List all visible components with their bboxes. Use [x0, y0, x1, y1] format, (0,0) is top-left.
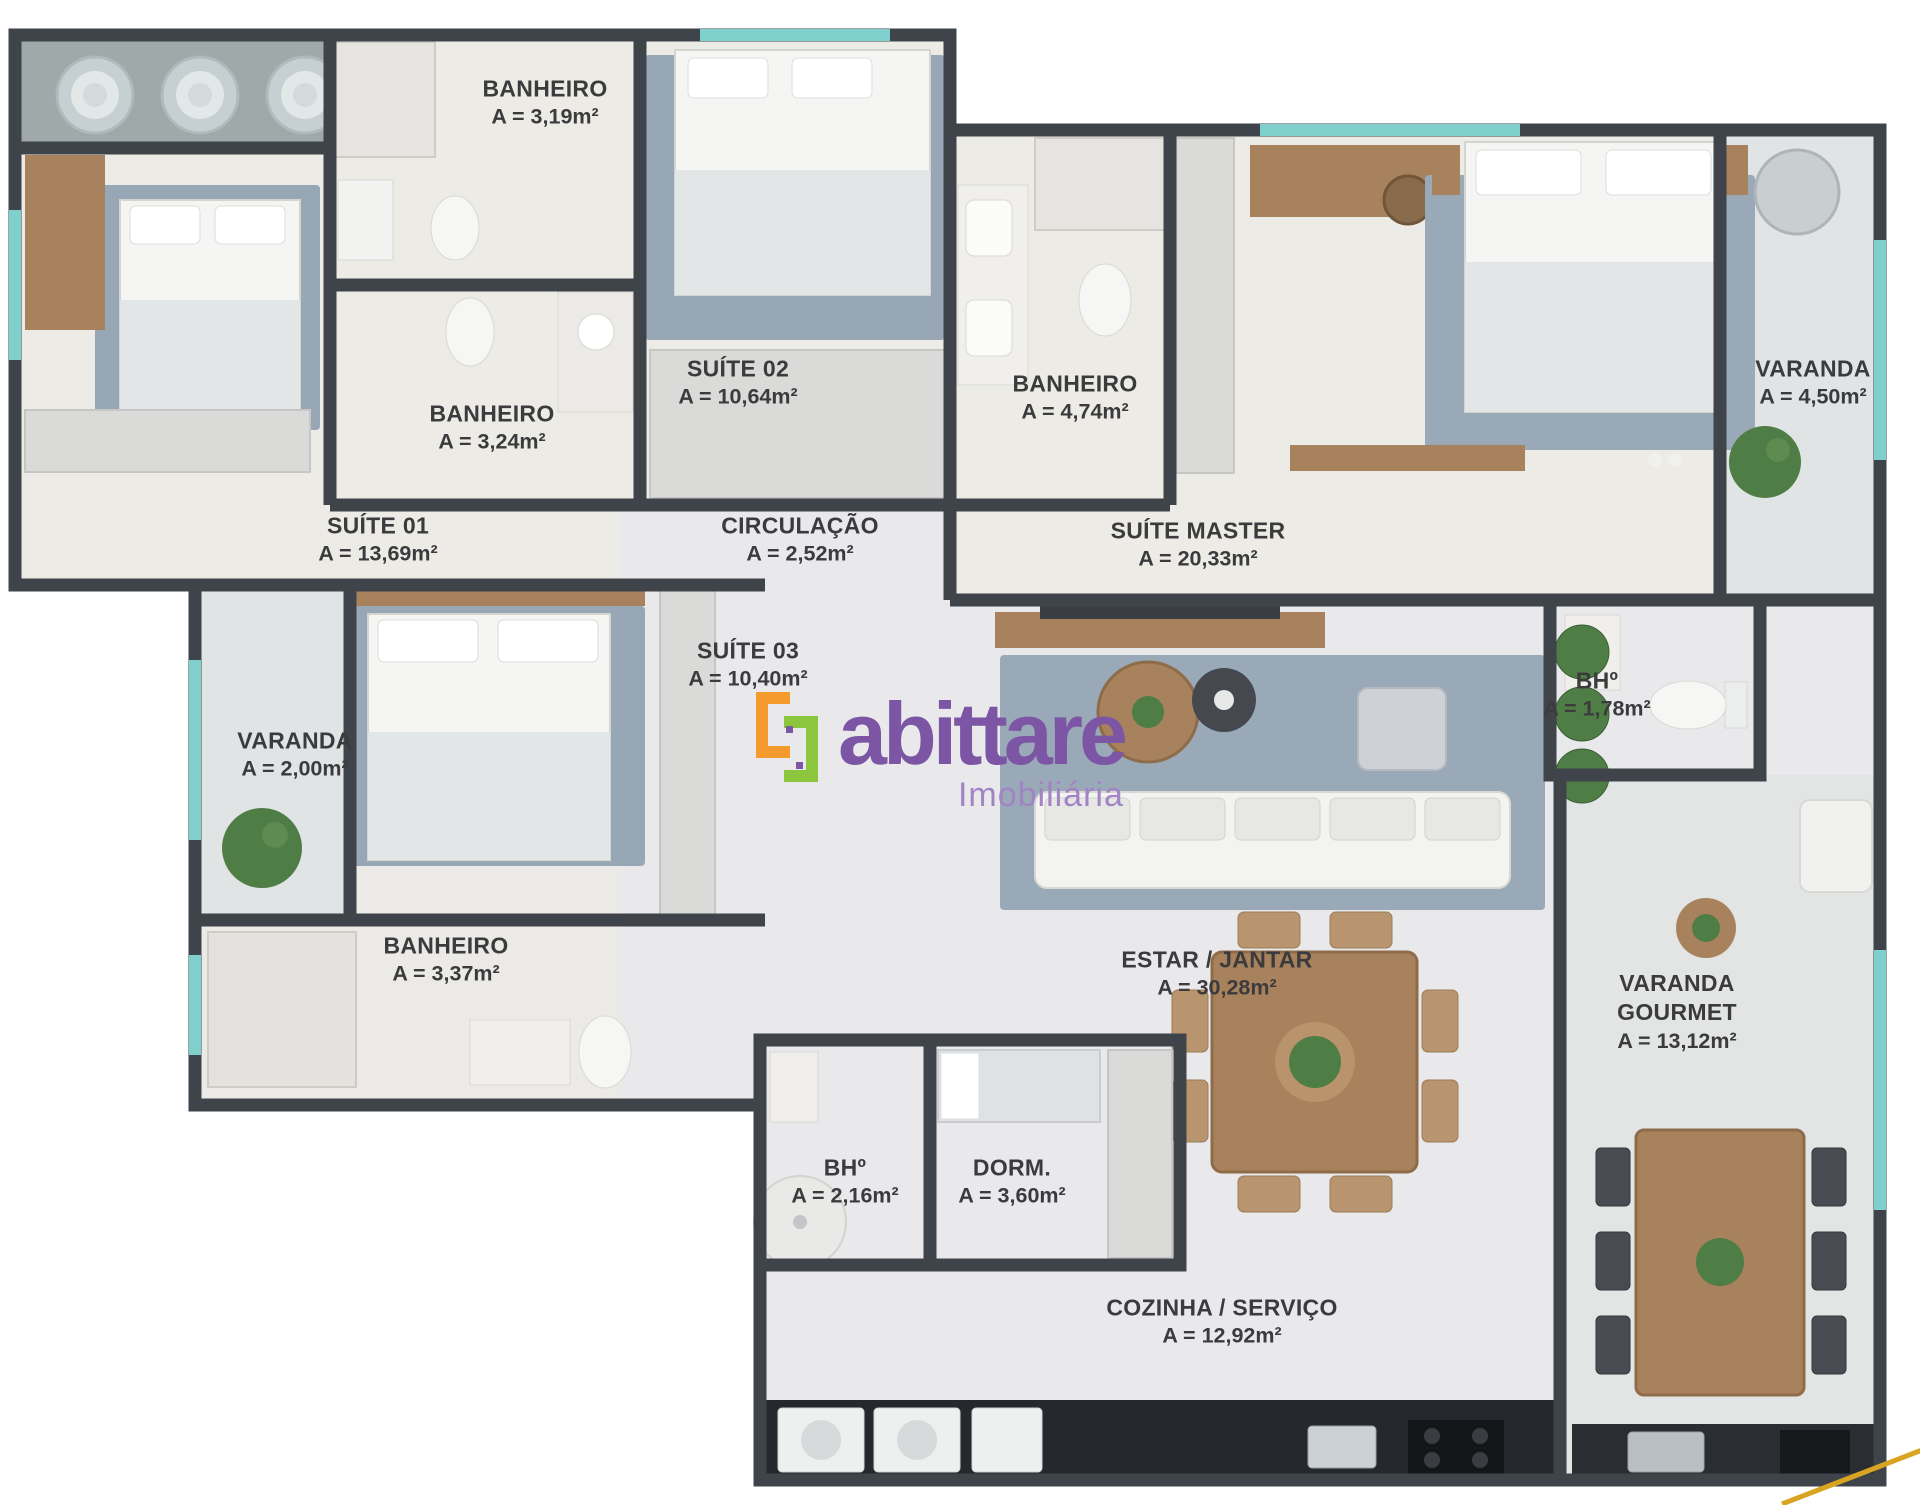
shower-icon: [335, 42, 435, 157]
plant-icon: [222, 808, 302, 888]
room-label-varanda-suite03: VARANDAA = 2,00m²: [237, 727, 352, 784]
dryer-door: [897, 1420, 937, 1460]
room-label-bh-servico: BHºA = 2,16m²: [791, 1154, 898, 1211]
chair-icon: [1422, 990, 1458, 1052]
window: [189, 955, 201, 1055]
cushion: [1330, 798, 1415, 840]
room-label-suite-master: SUÍTE MASTERA = 20,33m²: [1111, 517, 1286, 574]
room-label-varanda-gourmet: VARANDA GOURMETA = 13,12m²: [1617, 969, 1737, 1055]
chair-icon: [1812, 1148, 1846, 1206]
room-name: BANHEIRO: [383, 932, 508, 961]
logo-tagline: Imobiliária: [958, 776, 1124, 815]
plant-leaf: [1766, 438, 1790, 462]
chair-icon: [1330, 1176, 1392, 1212]
room-area: A = 13,69m²: [318, 541, 437, 569]
window: [9, 210, 21, 360]
toilet-icon: [579, 1016, 631, 1088]
round-light-icon: [162, 57, 238, 133]
furniture-suite02: [645, 50, 945, 498]
furniture-suite01: [25, 155, 320, 472]
room-area: A = 3,37m²: [383, 961, 508, 989]
desk-icon: [25, 155, 105, 330]
window: [189, 660, 201, 840]
logo-brand: abittare: [838, 692, 1124, 776]
logo-text: abittare Imobiliária: [838, 692, 1124, 815]
sink-icon: [338, 180, 393, 260]
chair-icon: [1596, 1316, 1630, 1374]
room-name: BANHEIRO: [429, 400, 554, 429]
window: [1260, 124, 1520, 136]
chair-icon: [1812, 1232, 1846, 1290]
pillow: [498, 620, 598, 662]
room-name: ESTAR / JANTAR: [1121, 946, 1312, 975]
stove-icon: [1408, 1420, 1504, 1476]
room-area: A = 4,74m²: [1012, 399, 1137, 427]
abittare-logo-icon: [756, 692, 826, 796]
decor: [1214, 690, 1234, 710]
room-area: A = 2,16m²: [791, 1183, 898, 1211]
room-name: DORM.: [958, 1154, 1065, 1183]
burner: [1472, 1428, 1488, 1444]
burner: [1472, 1452, 1488, 1468]
room-name: VARANDA: [1755, 355, 1870, 384]
headboard-panel: [345, 590, 645, 606]
room-area: A = 13,12m²: [1617, 1028, 1737, 1056]
room-area: A = 4,50m²: [1755, 384, 1870, 412]
shower-icon: [208, 932, 356, 1087]
room-area: A = 30,28m²: [1121, 975, 1312, 1003]
room-label-banheiro-master: BANHEIROA = 4,74m²: [1012, 370, 1137, 427]
plant-icon: [1132, 696, 1164, 728]
window: [1874, 950, 1886, 1210]
room-area: A = 3,60m²: [958, 1183, 1065, 1211]
room-label-suite-02: SUÍTE 02A = 10,64m²: [678, 355, 797, 412]
chair-icon: [1812, 1316, 1846, 1374]
closet-shelves-icon: [1176, 138, 1234, 473]
room-name: SUÍTE MASTER: [1111, 517, 1286, 546]
plant-icon: [1289, 1036, 1341, 1088]
cushion: [1425, 798, 1500, 840]
room-area: A = 20,33m²: [1111, 546, 1286, 574]
room-area: A = 2,00m²: [237, 756, 352, 784]
room-label-varanda-master: VARANDAA = 4,50m²: [1755, 355, 1870, 412]
chair-icon: [1596, 1232, 1630, 1290]
burner: [1424, 1452, 1440, 1468]
sideboard-icon: [1290, 445, 1525, 471]
furniture-varanda2: [222, 808, 302, 888]
armchair-icon: [1358, 688, 1446, 770]
blanket: [368, 732, 610, 860]
room-area: A = 1,78m²: [1543, 696, 1650, 724]
chair-icon: [1238, 1176, 1300, 1212]
window: [700, 29, 890, 41]
room-area: A = 2,52m²: [721, 541, 879, 569]
sink-icon: [578, 314, 614, 350]
room-name: CIRCULAÇÃO: [721, 512, 879, 541]
decor: [1668, 453, 1682, 467]
room-area: A = 3,19m²: [482, 104, 607, 132]
room-name: VARANDA: [237, 727, 352, 756]
room-label-dorm: DORM.A = 3,60m²: [958, 1154, 1065, 1211]
room-label-suite-01: SUÍTE 01A = 13,69m²: [318, 512, 437, 569]
pillow: [1606, 150, 1711, 195]
chair-icon: [1330, 912, 1392, 948]
plant-icon: [1696, 1238, 1744, 1286]
toilet-icon: [1079, 264, 1131, 336]
toilet-icon: [431, 196, 479, 260]
pillow: [1476, 150, 1581, 195]
vanity-icon: [470, 1020, 570, 1085]
blanket: [675, 170, 930, 295]
room-name: BANHEIRO: [482, 75, 607, 104]
room-label-estar-jantar: ESTAR / JANTARA = 30,28m²: [1121, 946, 1312, 1003]
room-name: VARANDA GOURMET: [1617, 969, 1737, 1028]
logo-dot: [796, 762, 803, 769]
lounge-chair-icon: [1800, 800, 1872, 892]
room-name: COZINHA / SERVIÇO: [1106, 1294, 1337, 1323]
plant-leaf: [262, 822, 288, 848]
decor: [1648, 453, 1662, 467]
logo-dot: [786, 726, 793, 733]
mirror-icon: [1384, 176, 1432, 224]
pillow: [792, 58, 872, 98]
chair-icon: [1238, 912, 1300, 948]
room-name: BHº: [1543, 667, 1650, 696]
room-area: A = 3,24m²: [429, 429, 554, 457]
shower-icon: [1035, 138, 1165, 230]
wardrobe-icon: [25, 410, 310, 472]
plant-icon: [1692, 914, 1720, 942]
grill-icon: [1780, 1430, 1850, 1474]
room-label-suite-03: SUÍTE 03A = 10,40m²: [688, 637, 807, 694]
room-area: A = 10,64m²: [678, 384, 797, 412]
chair-icon: [1422, 1080, 1458, 1142]
room-name: SUÍTE 02: [678, 355, 797, 384]
sink-icon: [770, 1052, 818, 1122]
sink-icon: [966, 300, 1012, 356]
room-name: BANHEIRO: [1012, 370, 1137, 399]
room-area: A = 12,92m²: [1106, 1323, 1337, 1351]
counter-sink-icon: [1628, 1432, 1704, 1472]
nightstand-icon: [1432, 145, 1460, 195]
pillow: [130, 206, 200, 244]
chair-icon: [1596, 1148, 1630, 1206]
sink-icon: [1308, 1426, 1376, 1468]
blanket: [120, 300, 300, 415]
pillow: [688, 58, 768, 98]
window: [1874, 240, 1886, 460]
vanity-icon: [558, 292, 633, 412]
room-label-bh-social: BHºA = 1,78m²: [1543, 667, 1650, 724]
toilet-icon: [1650, 681, 1726, 729]
tv-icon: [1040, 606, 1280, 619]
floorplan-page: BANHEIROA = 3,19m² SUÍTE 02A = 10,64m² B…: [0, 0, 1920, 1505]
washer-door: [801, 1420, 841, 1460]
hanging-chair-icon: [1755, 150, 1839, 234]
abittare-logo: abittare Imobiliária: [756, 692, 1124, 815]
wardrobe-icon: [1108, 1050, 1172, 1258]
pillow: [215, 206, 285, 244]
blanket: [1465, 262, 1715, 412]
fridge-icon: [972, 1408, 1042, 1472]
room-name: SUÍTE 01: [318, 512, 437, 541]
room-label-banheiro-suite02: BANHEIROA = 3,19m²: [482, 75, 607, 132]
terrace-lights: [57, 57, 343, 133]
pillow: [941, 1053, 979, 1119]
pillow: [378, 620, 478, 662]
furniture-cozinha: [766, 1400, 1556, 1478]
plant-icon: [1729, 426, 1801, 498]
toilet-tank: [1725, 682, 1747, 728]
toilet-icon: [446, 298, 494, 366]
sink-icon: [966, 200, 1012, 256]
room-area: A = 10,40m²: [688, 666, 807, 694]
cushion: [1140, 798, 1225, 840]
room-name: SUÍTE 03: [688, 637, 807, 666]
drain: [793, 1215, 807, 1229]
room-label-circulacao: CIRCULAÇÃOA = 2,52m²: [721, 512, 879, 569]
burner: [1424, 1428, 1440, 1444]
room-label-banheiro-suite03: BANHEIROA = 3,37m²: [383, 932, 508, 989]
round-light-icon: [57, 57, 133, 133]
room-name: BHº: [791, 1154, 898, 1183]
room-label-cozinha: COZINHA / SERVIÇOA = 12,92m²: [1106, 1294, 1337, 1351]
cushion: [1235, 798, 1320, 840]
room-label-banheiro-suite01: BANHEIROA = 3,24m²: [429, 400, 554, 457]
